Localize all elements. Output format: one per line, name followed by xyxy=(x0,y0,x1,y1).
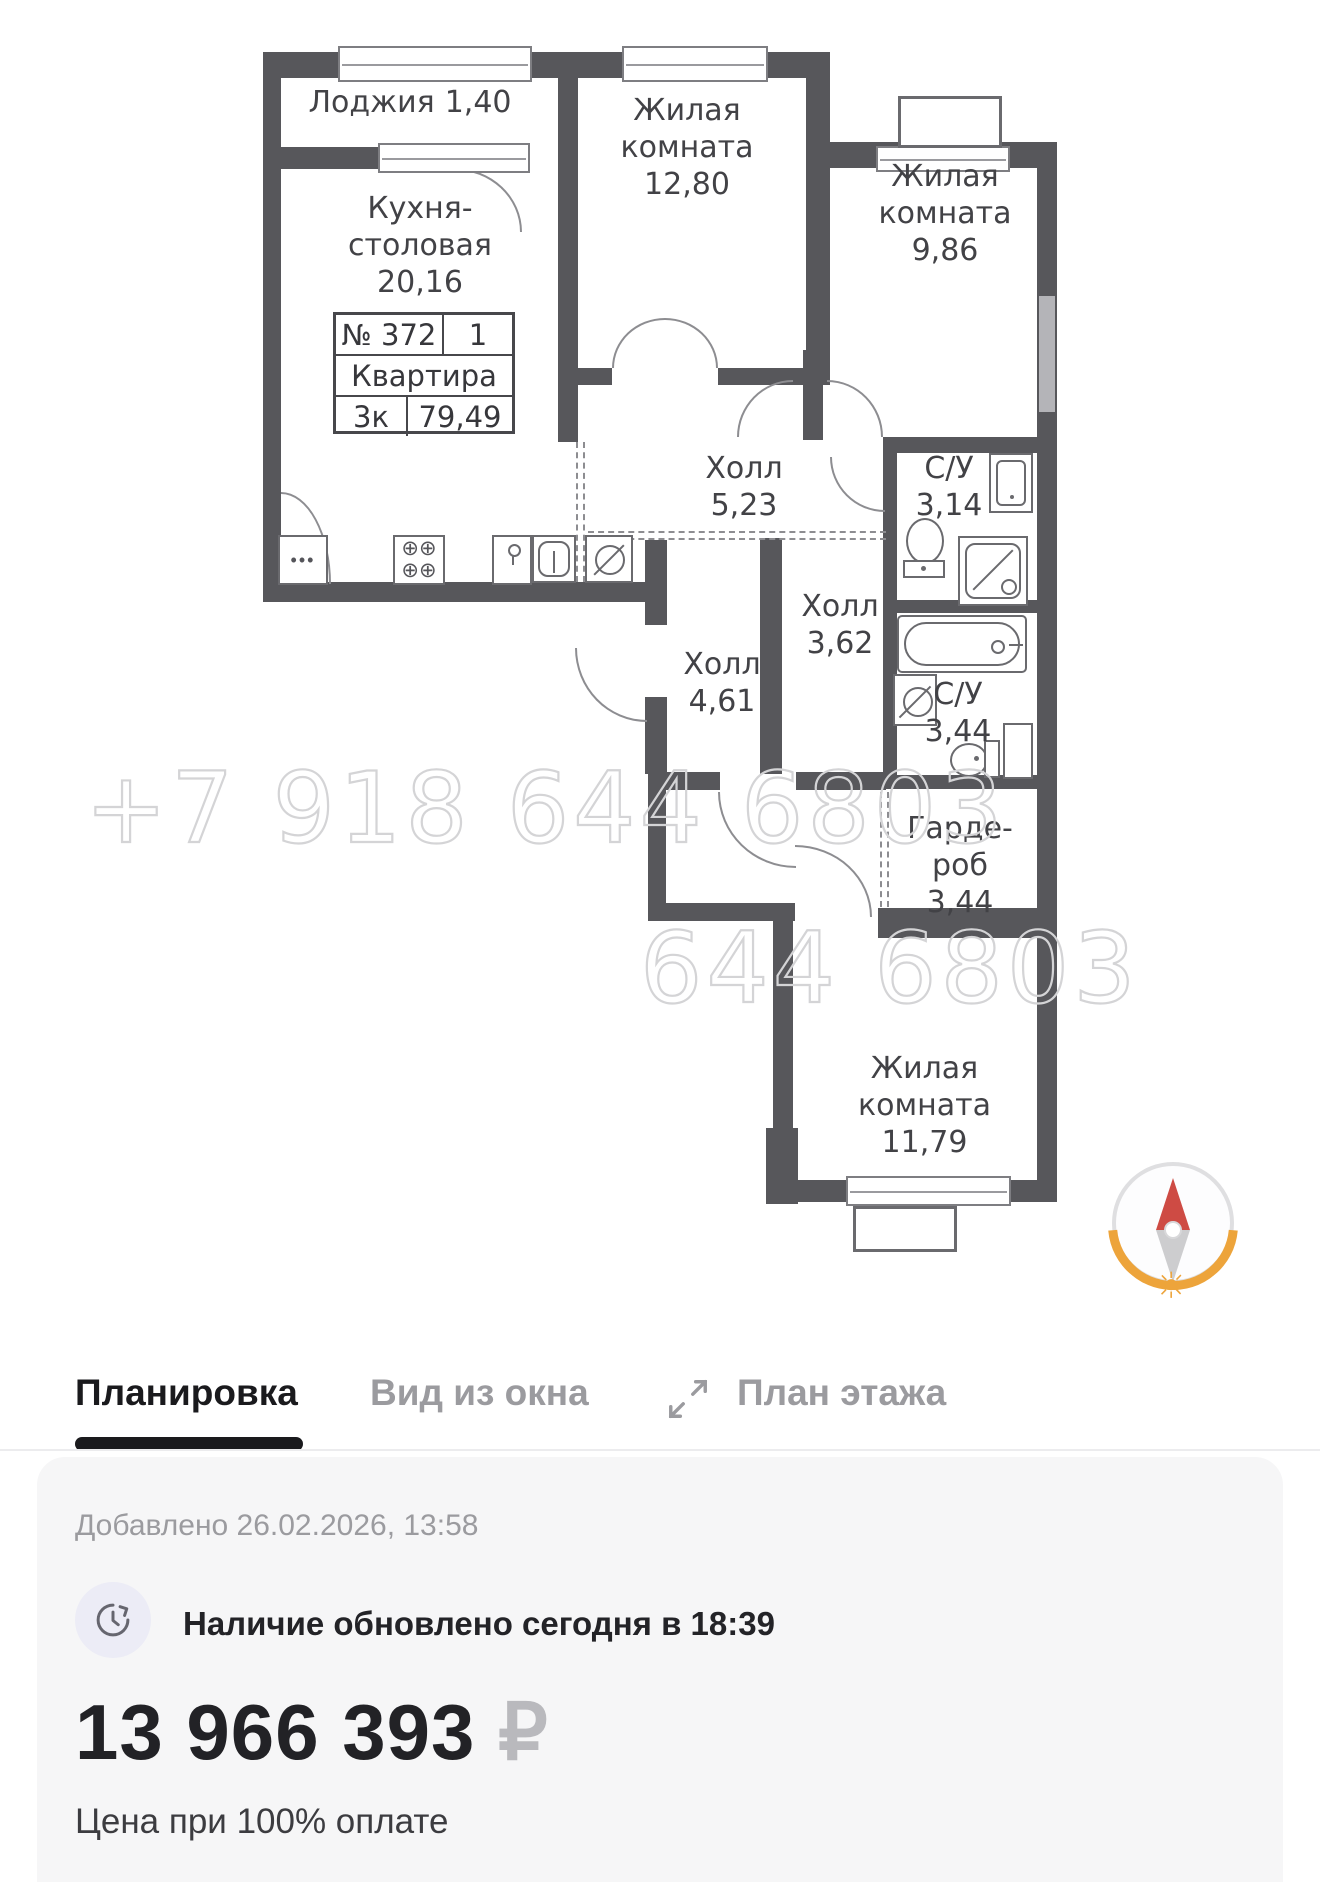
balcony-box xyxy=(853,1206,957,1252)
unit-rooms: 3к xyxy=(336,397,408,436)
room-area: 9,86 xyxy=(912,232,979,269)
room-label-hall1: Холл 5,23 xyxy=(680,450,808,524)
room-area: 5,23 xyxy=(711,487,778,524)
room-name: Жилая комната xyxy=(598,92,776,166)
room-label-hall2: Холл 3,62 xyxy=(781,588,899,662)
room-label-living2: Жилая комната 9,86 xyxy=(853,158,1037,269)
wall xyxy=(263,582,665,602)
wall xyxy=(578,368,612,385)
room-area: 20,16 xyxy=(377,264,463,301)
floorplan-image[interactable]: ••• ⊕⊕⊕⊕ xyxy=(0,0,1320,1360)
room-area: 3,62 xyxy=(807,625,874,662)
door-arc xyxy=(830,457,885,512)
wall xyxy=(773,1180,853,1202)
unit-total-area: 79,49 xyxy=(408,397,512,436)
payment-note: Цена при 100% оплате xyxy=(75,1802,448,1842)
washing-machine-icon xyxy=(585,535,633,583)
wall xyxy=(281,147,381,169)
stove-icon: ⊕⊕⊕⊕ xyxy=(393,535,445,585)
fridge-icon: ••• xyxy=(278,535,328,585)
price: 13 966 393 ₽ xyxy=(75,1687,549,1778)
room-label-living3: Жилая комната 11,79 xyxy=(832,1050,1017,1161)
door-arc xyxy=(575,648,647,722)
toilet-icon xyxy=(903,518,945,586)
room-label-bath2: С/У 3,44 xyxy=(906,676,1010,750)
listing-screen: ••• ⊕⊕⊕⊕ xyxy=(0,0,1320,1882)
unit-number: № 372 xyxy=(336,315,444,354)
tab-vid-iz-okna[interactable]: Вид из окна xyxy=(370,1372,589,1414)
room-area: 3,14 xyxy=(916,487,983,524)
currency-symbol: ₽ xyxy=(498,1688,549,1776)
availability-badge xyxy=(75,1582,151,1658)
window xyxy=(846,1176,1011,1206)
room-area: 11,79 xyxy=(882,1124,968,1161)
door-arc xyxy=(827,380,883,437)
shower-icon xyxy=(958,536,1028,606)
watermark-phone: +7 918 644 6803 xyxy=(85,752,1006,866)
gallery-tabs: Планировка Вид из окна План этажа xyxy=(0,1360,1320,1452)
room-name: С/У xyxy=(933,676,982,713)
wall xyxy=(263,52,281,602)
sun-icon: ☀ xyxy=(1155,1266,1187,1307)
window xyxy=(378,143,530,173)
room-name: Кухня-столовая xyxy=(320,190,520,264)
room-area: 3,44 xyxy=(925,713,992,750)
room-label-kitchen: Кухня-столовая 20,16 xyxy=(320,190,520,301)
room-name: Холл xyxy=(801,588,878,625)
room-name: Жилая комната xyxy=(832,1050,1017,1124)
room-name: Холл xyxy=(683,646,760,683)
room-area: 4,61 xyxy=(689,683,756,720)
clock-refresh-icon xyxy=(92,1599,134,1641)
unit-type: Квартира xyxy=(336,356,512,395)
open-boundary xyxy=(576,442,585,582)
door-arc xyxy=(612,318,665,368)
door-arc xyxy=(737,380,793,437)
wall xyxy=(645,540,667,625)
expand-icon[interactable] xyxy=(665,1376,711,1422)
price-value: 13 966 393 xyxy=(75,1688,475,1776)
door-arc xyxy=(665,318,718,368)
unit-entrance: 1 xyxy=(444,315,512,354)
wall xyxy=(1005,1180,1057,1202)
window xyxy=(1039,296,1055,412)
wall xyxy=(806,52,830,385)
window xyxy=(622,46,768,82)
wall xyxy=(558,52,578,442)
window xyxy=(338,46,532,82)
divider xyxy=(0,1449,1320,1451)
room-label-hall3: Холл 4,61 xyxy=(661,646,783,720)
room-name: Лоджия xyxy=(308,84,434,121)
added-date: Добавлено 26.02.2026, 13:58 xyxy=(75,1509,478,1543)
details-card: Добавлено 26.02.2026, 13:58 Наличие обно… xyxy=(37,1457,1283,1882)
tab-planirovka[interactable]: Планировка xyxy=(75,1372,298,1414)
balcony-box xyxy=(898,96,1002,148)
unit-info-table: № 372 1 Квартира 3к 79,49 xyxy=(333,312,515,434)
room-area: 12,80 xyxy=(644,166,730,203)
room-area: 1,40 xyxy=(445,84,512,121)
watermark-phone: 644 6803 xyxy=(640,912,1140,1026)
compass-icon: ☀ xyxy=(1103,1156,1251,1316)
wall xyxy=(803,350,823,440)
room-name: Холл xyxy=(705,450,782,487)
room-label-bath1: С/У 3,14 xyxy=(901,450,997,524)
tab-plan-etazha[interactable]: План этажа xyxy=(737,1372,946,1414)
sink-icon xyxy=(492,535,532,585)
bathtub-icon xyxy=(897,615,1027,673)
availability-text: Наличие обновлено сегодня в 18:39 xyxy=(183,1605,775,1643)
sink-icon xyxy=(532,535,576,583)
room-label-loggia: Лоджия 1,40 xyxy=(285,84,535,121)
room-label-living1: Жилая комната 12,80 xyxy=(598,92,776,203)
room-name: Жилая комната xyxy=(853,158,1037,232)
room-name: С/У xyxy=(924,450,973,487)
